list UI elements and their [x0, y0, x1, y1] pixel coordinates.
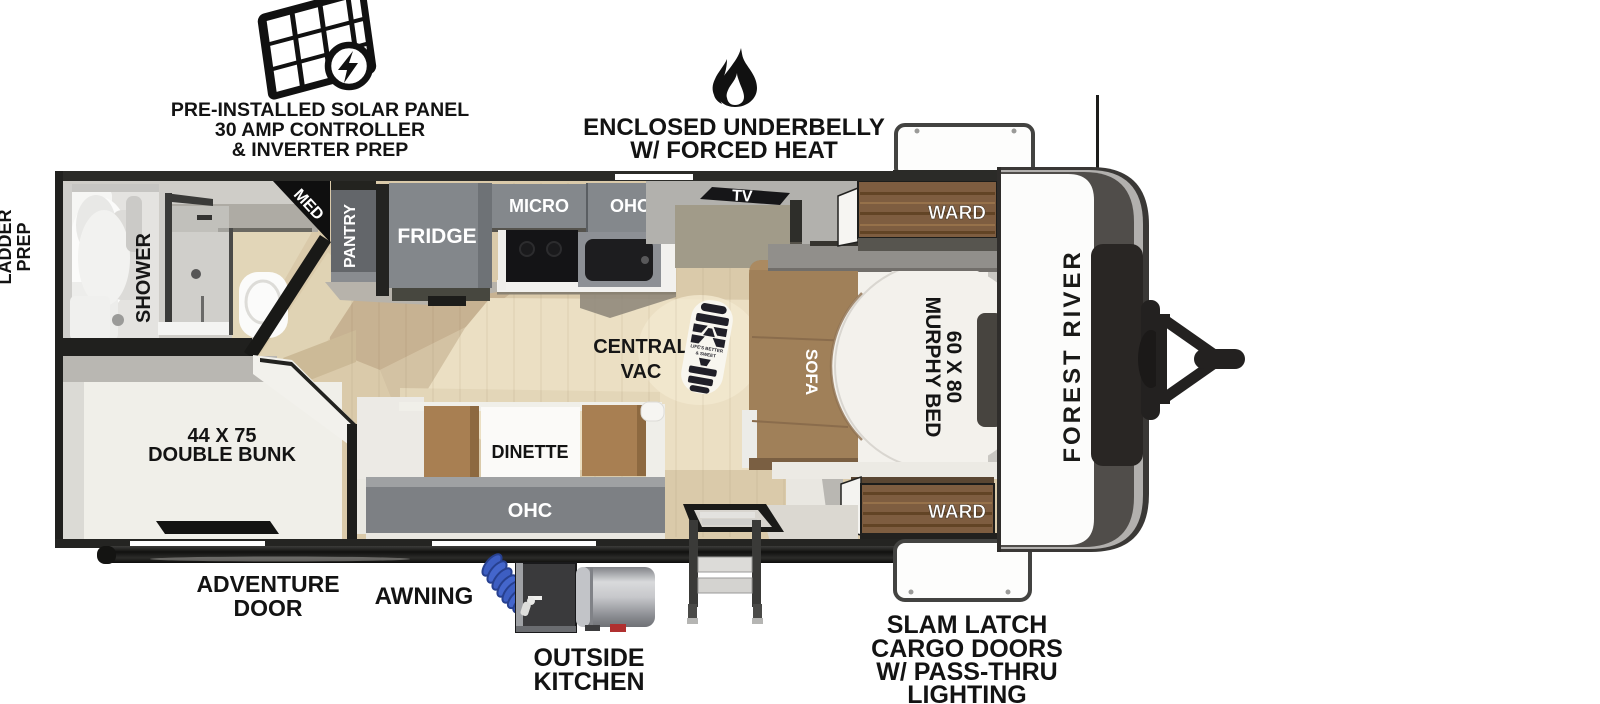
- svg-text:CENTRAL: CENTRAL: [593, 336, 689, 358]
- svg-text:60 X 80: 60 X 80: [942, 331, 965, 403]
- svg-text:MURPHY BED: MURPHY BED: [921, 297, 944, 438]
- svg-text:SHOWER: SHOWER: [133, 232, 155, 323]
- svg-text:VAC: VAC: [621, 361, 662, 383]
- svg-text:W/ FORCED HEAT: W/ FORCED HEAT: [630, 137, 838, 164]
- svg-text:AWNING: AWNING: [375, 583, 474, 610]
- svg-text:LIGHTING: LIGHTING: [907, 681, 1026, 704]
- svg-text:TV: TV: [732, 187, 754, 205]
- svg-text:MICRO: MICRO: [509, 196, 569, 216]
- svg-text:WARD: WARD: [928, 502, 986, 523]
- svg-text:SOFA: SOFA: [802, 349, 821, 395]
- svg-text:PRE-INSTALLED SOLAR PANEL: PRE-INSTALLED SOLAR PANEL: [171, 99, 469, 121]
- svg-text:ADVENTURE: ADVENTURE: [196, 571, 339, 597]
- svg-text:KITCHEN: KITCHEN: [533, 668, 644, 696]
- svg-text:FOREST RIVER: FOREST RIVER: [1059, 249, 1086, 462]
- svg-text:PANTRY: PANTRY: [342, 204, 359, 268]
- svg-text:DOOR: DOOR: [234, 595, 303, 621]
- svg-text:DINETTE: DINETTE: [491, 442, 568, 462]
- svg-text:LADDER: LADDER: [0, 210, 15, 285]
- svg-text:WARD: WARD: [928, 203, 986, 224]
- svg-text:OHC: OHC: [610, 196, 650, 216]
- svg-text:30 AMP CONTROLLER: 30 AMP CONTROLLER: [215, 119, 425, 141]
- svg-text:OHC: OHC: [508, 500, 552, 522]
- svg-text:& INVERTER PREP: & INVERTER PREP: [232, 139, 409, 161]
- svg-text:PREP: PREP: [14, 222, 34, 271]
- svg-text:FRIDGE: FRIDGE: [397, 225, 476, 248]
- svg-text:DOUBLE BUNK: DOUBLE BUNK: [148, 444, 296, 466]
